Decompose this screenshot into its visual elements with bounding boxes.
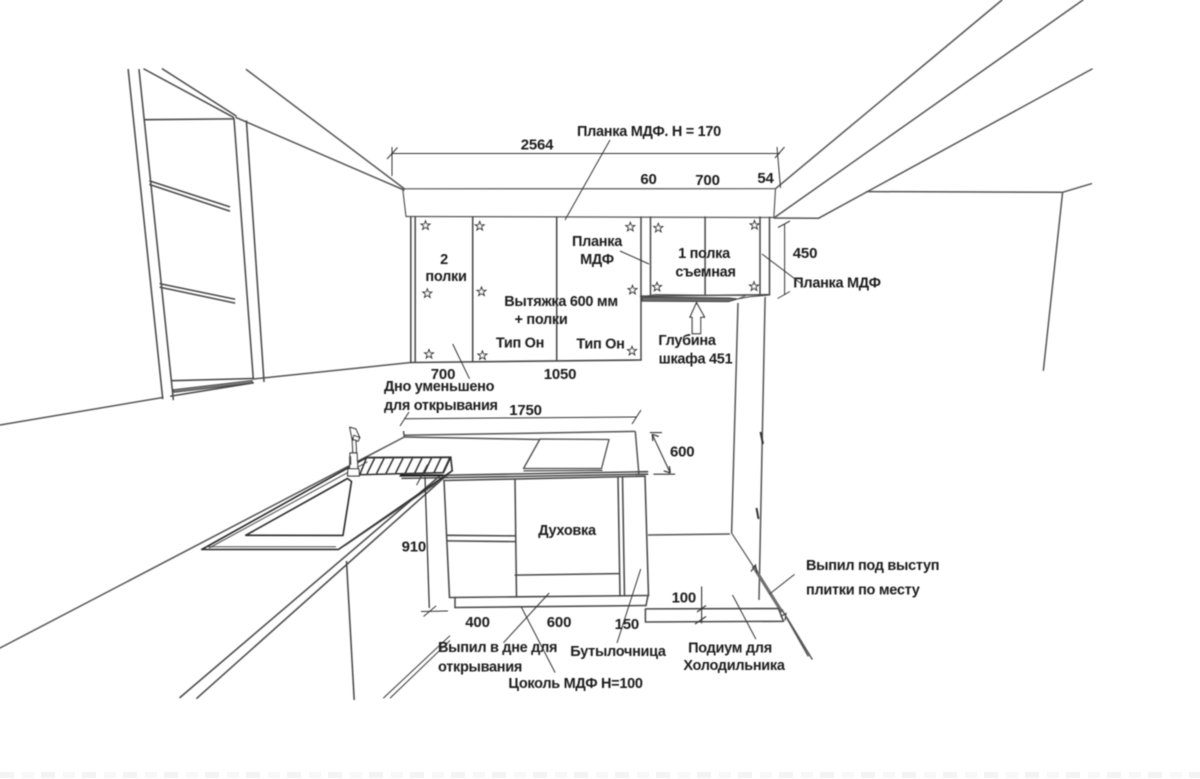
- svg-text:для открывания: для открывания: [384, 398, 498, 414]
- svg-text:Духовка: Духовка: [538, 523, 597, 539]
- svg-text:450: 450: [793, 245, 817, 262]
- svg-text:2564: 2564: [521, 137, 554, 154]
- svg-text:700: 700: [695, 172, 719, 189]
- svg-text:2: 2: [440, 252, 448, 268]
- svg-text:1050: 1050: [544, 366, 577, 383]
- svg-text:открывания: открывания: [438, 660, 522, 676]
- svg-text:полки: полки: [425, 269, 466, 285]
- svg-text:54: 54: [757, 170, 774, 187]
- svg-text:Цоколь МДФ Н=100: Цоколь МДФ Н=100: [508, 676, 643, 692]
- svg-text:60: 60: [640, 171, 656, 188]
- svg-text:Холодильника: Холодильника: [683, 658, 786, 674]
- svg-text:1750: 1750: [509, 402, 542, 419]
- svg-text:400: 400: [465, 614, 489, 631]
- svg-text:+ полки: + полки: [514, 312, 567, 328]
- svg-text:Глубина: Глубина: [658, 333, 716, 349]
- svg-text:600: 600: [670, 444, 694, 461]
- svg-text:Планка МДФ. Н = 170: Планка МДФ. Н = 170: [577, 124, 721, 140]
- svg-text:1 полка: 1 полка: [678, 246, 731, 262]
- svg-text:Тип Он: Тип Он: [496, 336, 544, 352]
- svg-text:910: 910: [402, 539, 426, 556]
- svg-text:плитки по месту: плитки по месту: [806, 583, 920, 599]
- svg-text:Дно уменьшено: Дно уменьшено: [384, 379, 495, 395]
- svg-text:съемная: съемная: [675, 265, 735, 281]
- svg-text:600: 600: [547, 614, 571, 631]
- svg-text:шкафа 451: шкафа 451: [659, 352, 733, 368]
- svg-text:Вытяжка 600 мм: Вытяжка 600 мм: [504, 294, 618, 310]
- svg-text:Планка: Планка: [572, 234, 623, 250]
- svg-text:МДФ: МДФ: [580, 252, 614, 268]
- svg-text:150: 150: [615, 616, 639, 633]
- svg-text:Планка МДФ: Планка МДФ: [793, 276, 880, 292]
- svg-text:Выпил под выступ: Выпил под выступ: [806, 558, 939, 574]
- svg-text:Бутылочница: Бутылочница: [570, 644, 667, 660]
- svg-text:100: 100: [672, 590, 696, 607]
- svg-text:Подиум для: Подиум для: [688, 641, 772, 657]
- svg-text:Тип Он: Тип Он: [576, 337, 624, 353]
